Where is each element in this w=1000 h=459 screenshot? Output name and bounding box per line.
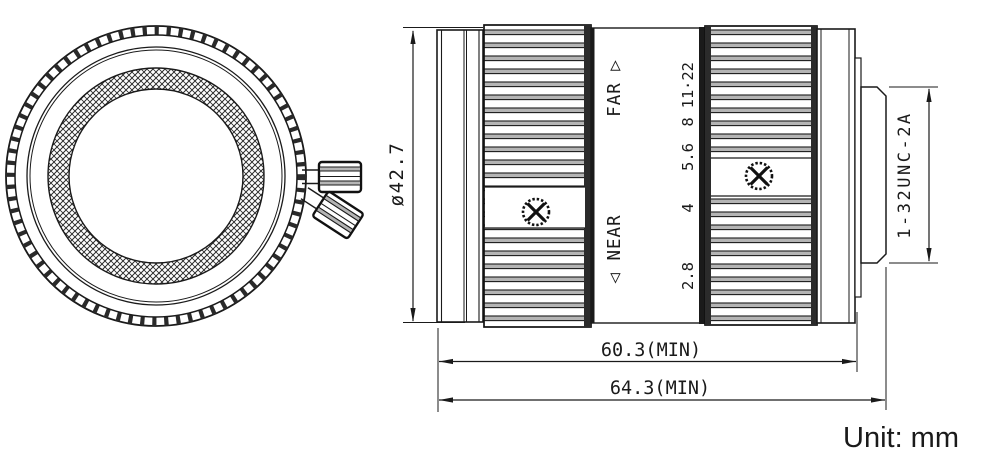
thumb-screw-top — [302, 162, 361, 192]
rear-ring — [817, 29, 855, 323]
far-label: FAR ▷ — [605, 59, 625, 117]
unit-note: Unit: mm — [843, 422, 959, 454]
front-view — [6, 26, 364, 326]
aperture-mark-5-6: 5.6 — [679, 143, 697, 171]
aperture-mark-8: 8 — [679, 117, 697, 126]
lens-technical-drawing: FAR ▷ ◁ NEAR 2.8 4 5.6 8 11 ·22 — [0, 0, 1000, 459]
side-view: FAR ▷ ◁ NEAR 2.8 4 5.6 8 11 ·22 — [437, 25, 938, 327]
focus-ring — [484, 25, 591, 327]
aperture-mark-2-8: 2.8 — [679, 262, 697, 290]
focus-scale-drum: FAR ▷ ◁ NEAR 2.8 4 5.6 8 11 ·22 — [591, 27, 715, 324]
front-bezel — [437, 30, 483, 322]
overall-length-label: 64.3(MIN) — [610, 378, 710, 399]
aperture-set-screw-icon — [746, 163, 772, 189]
thread-dim: 1-32UNC-2A — [889, 87, 938, 263]
focus-set-screw-icon — [523, 199, 549, 225]
mount-thread — [861, 87, 886, 263]
aperture-mark-11: 11 — [679, 90, 697, 109]
thread-label: 1-32UNC-2A — [895, 111, 915, 238]
aperture-mark-22: ·22 — [679, 62, 697, 90]
aperture-mark-4: 4 — [679, 203, 697, 212]
mount-step — [855, 58, 861, 297]
diameter-label: ø42.7 — [386, 142, 408, 207]
flange-length-label: 60.3(MIN) — [601, 340, 701, 361]
aperture-ring — [705, 26, 817, 325]
near-label: ◁ NEAR — [605, 214, 625, 283]
lens-bore — [69, 89, 243, 263]
drawing-canvas: FAR ▷ ◁ NEAR 2.8 4 5.6 8 11 ·22 — [0, 0, 1000, 459]
